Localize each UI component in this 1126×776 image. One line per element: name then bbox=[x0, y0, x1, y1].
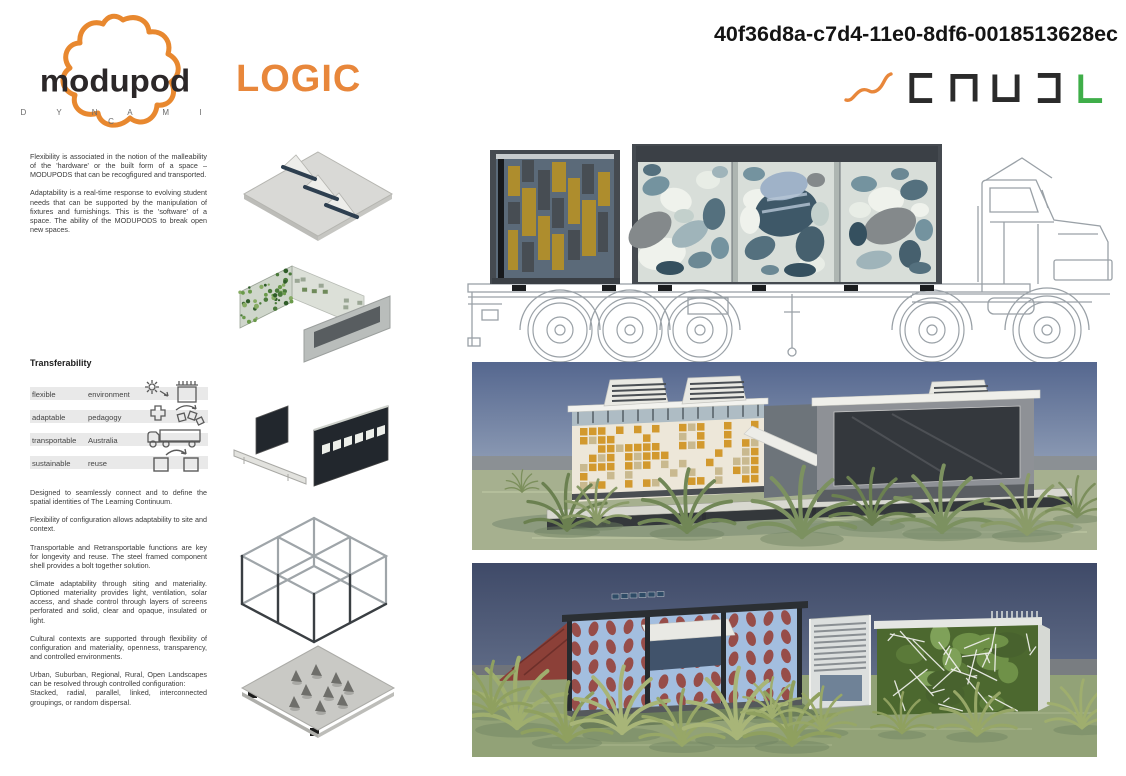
bracket-open-right-icon bbox=[907, 72, 936, 104]
brand-squiggle-icon bbox=[842, 68, 894, 104]
exploded-diagram-steel-frame bbox=[226, 512, 404, 648]
module-ellipse-screen bbox=[622, 144, 942, 284]
bracket-open-bottom-icon bbox=[949, 72, 978, 104]
dynamic-wordmark: D Y N A M I C bbox=[14, 108, 222, 126]
transferability-heading: Transferability bbox=[30, 358, 208, 368]
intro-section: Flexibility is associated in the notion … bbox=[30, 152, 207, 243]
day-render-figure bbox=[472, 362, 1097, 550]
value-label: Australia bbox=[88, 436, 118, 445]
value-label: reuse bbox=[88, 459, 107, 468]
body-paragraph: Designed to seamlessly connect and to de… bbox=[30, 488, 207, 506]
body-paragraph: Transportable and Retransportable functi… bbox=[30, 543, 207, 570]
intro-paragraph: Adaptability is a real-time response to … bbox=[30, 188, 207, 234]
term-label: flexible bbox=[32, 390, 56, 399]
dusk-render-figure bbox=[472, 563, 1097, 757]
body-paragraph: Climate adaptability through siting and … bbox=[30, 579, 207, 625]
bracket-open-top-icon bbox=[991, 72, 1020, 104]
body-paragraph: Stacked, radial, parallel, linked, inter… bbox=[30, 688, 207, 706]
presentation-board: MODUPOD D Y N A M I C LOGIC 40f36d8a-c7d… bbox=[0, 0, 1126, 776]
body-paragraph: Flexibility of configuration allows adap… bbox=[30, 515, 207, 533]
l-bracket-icon bbox=[1075, 72, 1104, 104]
value-label: pedagogy bbox=[88, 413, 121, 422]
exploded-diagram-floor-plate bbox=[236, 640, 404, 740]
term-label: adaptable bbox=[32, 413, 65, 422]
exploded-diagram-roof-plate bbox=[238, 142, 398, 254]
transferability-row: sustainable reuse bbox=[30, 456, 208, 469]
term-label: transportable bbox=[32, 436, 76, 445]
value-label: environment bbox=[88, 390, 130, 399]
transferability-row: flexible environment bbox=[30, 387, 208, 400]
exploded-diagram-wall-assembly bbox=[230, 250, 402, 364]
box-reuse-arrow-icon bbox=[142, 446, 208, 474]
transferability-section: Transferability flexible environment ada… bbox=[30, 358, 208, 469]
truck-elevation-figure bbox=[462, 142, 1126, 364]
transferability-row: adaptable pedagogy bbox=[30, 410, 208, 423]
module-mustard-panel bbox=[490, 150, 620, 284]
body-paragraph: Cultural contexts are supported through … bbox=[30, 634, 207, 661]
modupod-logo: MODUPOD D Y N A M I C bbox=[8, 12, 222, 140]
body-text-section: Designed to seamlessly connect and to de… bbox=[30, 488, 207, 716]
exploded-diagram-screen-panels bbox=[230, 404, 402, 504]
term-label: sustainable bbox=[32, 459, 70, 468]
brand-marks bbox=[842, 68, 1104, 104]
transferability-row: transportable Australia bbox=[30, 433, 208, 446]
body-paragraph: Urban, Suburban, Regional, Rural, Open L… bbox=[30, 670, 207, 688]
document-id: 40f36d8a-c7d4-11e0-8df6-0018513628ec bbox=[714, 22, 1118, 47]
bracket-open-left-icon bbox=[1033, 72, 1062, 104]
intro-paragraph: Flexibility is associated in the notion … bbox=[30, 152, 207, 179]
modupod-wordmark: MODUPOD bbox=[8, 63, 222, 99]
logic-title: LOGIC bbox=[236, 58, 361, 101]
